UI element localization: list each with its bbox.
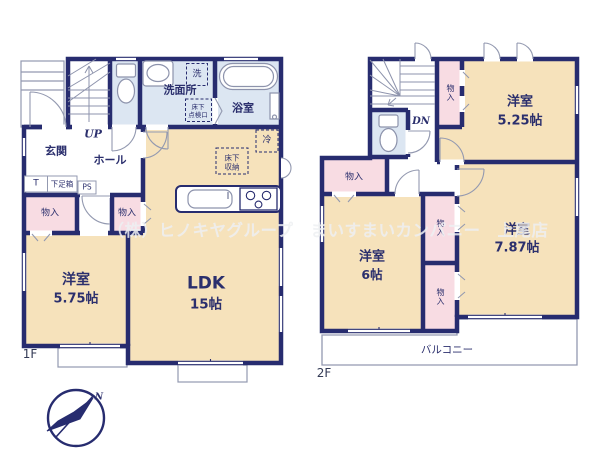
room-size-western-6: 6帖 xyxy=(361,269,382,282)
room-label-western-525: 洋室 xyxy=(507,96,533,109)
ps-label: PS xyxy=(82,183,91,191)
ldk-exterior-door xyxy=(281,158,291,178)
stove xyxy=(240,188,277,210)
toilet-door-arc-2f xyxy=(408,131,430,153)
room-size-western-1f: 5.75帖 xyxy=(53,293,98,306)
floor1-label: 1F xyxy=(23,348,38,360)
room-label-bathroom: 浴室 xyxy=(232,103,254,114)
room-label-entrance: 玄関 xyxy=(45,146,67,157)
shoe-box-label: 下足箱 xyxy=(51,180,74,188)
floor2-label: 2F xyxy=(317,367,332,379)
toilet-door-arc-1f xyxy=(112,127,136,151)
storage-left-1f-label: 物入 xyxy=(41,210,59,219)
stairs-dn-label: DN xyxy=(412,117,430,127)
room-label-washroom: 洗面所 xyxy=(164,85,197,96)
bay-window-west-room xyxy=(58,348,127,367)
room6-door-arc xyxy=(395,170,419,194)
bay-window-ldk xyxy=(178,365,247,382)
western-room-1f xyxy=(24,233,128,346)
toilet-bowl-2f xyxy=(380,129,397,152)
staircase-2f xyxy=(370,59,435,106)
room-label-hall: ホール xyxy=(94,155,127,166)
storage-left-2f-label: 物入 xyxy=(345,174,363,183)
compass-needle xyxy=(47,398,93,431)
room-size-western-525: 5.25帖 xyxy=(497,115,542,128)
balcony-label: バルコニー xyxy=(421,345,473,356)
toilet-bowl-1f xyxy=(118,79,135,103)
compass-north-label: N xyxy=(95,394,103,403)
room-size-western-787: 7.87帖 xyxy=(494,242,539,255)
watermark-text: （株）ヒノキヤグループ まいすまいカンパニー 上尾店 xyxy=(107,217,548,241)
underfloor-access-label-2: 点検口 xyxy=(188,112,208,119)
underfloor-access-label-1: 床下 xyxy=(192,104,205,111)
storage-mid-lower-2f-label: 物入 xyxy=(436,288,444,306)
washer-label: 洗 xyxy=(192,71,201,80)
toilet-tank-2f xyxy=(379,115,398,127)
floorplan-page: 玄関 ホール UP PS T 下足箱 洗面所 洗 床下 点検口 浴室 冷 床下 … xyxy=(0,0,600,450)
stairs-up-label: UP xyxy=(84,129,102,140)
kitchen-sink xyxy=(188,190,232,208)
underfloor-storage-label-1: 床下 xyxy=(225,154,240,162)
kitchen xyxy=(176,186,281,212)
room-size-ldk: 15帖 xyxy=(190,298,222,312)
floor2-fixtures xyxy=(379,115,398,152)
staircase-1f xyxy=(68,59,110,122)
toilet-tank-1f xyxy=(117,64,136,77)
hall-west-room-door-arc xyxy=(82,196,110,224)
room-label-ldk: LDK xyxy=(187,276,225,293)
fridge-label: 冷 xyxy=(262,137,271,146)
room-label-western-1f: 洋室 xyxy=(62,273,90,287)
t-label: T xyxy=(33,180,39,189)
ldk-room xyxy=(128,127,281,363)
storage-top-2f-label: 物入 xyxy=(446,84,454,102)
underfloor-storage-label-2: 収納 xyxy=(225,163,240,171)
room-label-western-6: 洋室 xyxy=(359,251,385,264)
